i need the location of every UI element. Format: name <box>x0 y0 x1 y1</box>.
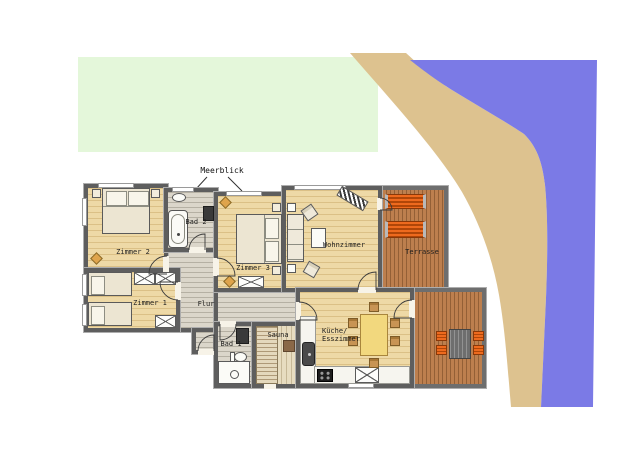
terrace-chair <box>473 331 484 341</box>
dining-chair <box>369 302 379 312</box>
label-terrasse: Terrasse <box>405 248 439 256</box>
label-flur: Flur <box>198 300 215 308</box>
double-bed-zimmer2 <box>102 188 150 234</box>
window-wohnzimmer-top <box>294 185 346 190</box>
lawn-area <box>78 57 378 152</box>
sofa <box>287 214 304 262</box>
nightstand <box>92 189 101 198</box>
label-sauna: Sauna <box>267 331 288 339</box>
stove <box>317 369 333 382</box>
shower-cabin <box>302 342 315 366</box>
dining-table <box>360 314 388 356</box>
label-bad2: Bad 2 <box>185 218 206 226</box>
washbasin <box>172 193 186 202</box>
label-wohnzimmer: Wohnzimmer <box>323 241 365 249</box>
door-gap-sauna <box>264 384 276 389</box>
label-kueche-line2: Esszimmer <box>322 335 360 343</box>
label-zimmer2: Zimmer 2 <box>116 248 150 256</box>
kitchen-sink <box>355 367 379 383</box>
wardrobe <box>134 272 155 285</box>
wardrobe <box>155 315 176 328</box>
single-bed-1 <box>88 272 132 296</box>
double-bed-zimmer3 <box>236 214 282 264</box>
label-bad1: Bad 1 <box>220 340 241 348</box>
terrace-chair <box>436 345 447 355</box>
door-gap-bad2 <box>189 247 206 253</box>
terrace-table <box>449 329 471 359</box>
floorplan-image: Meerblick Zimmer 2 Bad 2 Zimmer 3 Wohnzi… <box>0 0 640 452</box>
door-gap-bad1 <box>220 321 236 327</box>
dining-chair <box>390 336 400 346</box>
shower-tray <box>218 361 250 384</box>
sun-lounger <box>385 194 426 209</box>
sauna-heater <box>283 340 295 352</box>
nightstand <box>272 203 281 212</box>
terrace-chair <box>473 345 484 355</box>
side-table <box>287 203 296 212</box>
sun-lounger <box>385 221 426 238</box>
label-zimmer3: Zimmer 3 <box>236 264 270 272</box>
door-gap-zimmer3 <box>213 258 219 276</box>
label-kueche-line1: Küche/ <box>322 327 360 335</box>
window-zimmer3-top <box>226 191 262 196</box>
door-gap-entrance <box>198 349 214 355</box>
window-bad2-top <box>172 187 194 192</box>
wardrobe <box>155 272 176 285</box>
door-gap-terrasse-upper <box>377 198 382 210</box>
window-zimmer1-left-2 <box>82 304 87 326</box>
door-gap-wohnzimmer <box>358 287 376 293</box>
door-gap-terrasse <box>409 300 415 318</box>
single-bed-2 <box>88 302 132 326</box>
nightstand <box>151 189 160 198</box>
wardrobe <box>238 276 264 288</box>
window-zimmer2-left <box>82 198 87 226</box>
dining-chair <box>390 318 400 328</box>
label-kueche: Küche/ Esszimmer <box>322 327 360 343</box>
side-table <box>287 264 296 273</box>
terrace-chair <box>436 331 447 341</box>
dining-chair <box>369 358 379 368</box>
label-meerblick: Meerblick <box>200 167 243 175</box>
label-zimmer1: Zimmer 1 <box>133 299 167 307</box>
bathtub <box>168 210 188 248</box>
window-zimmer1-left-1 <box>82 274 87 296</box>
nightstand <box>272 266 281 275</box>
